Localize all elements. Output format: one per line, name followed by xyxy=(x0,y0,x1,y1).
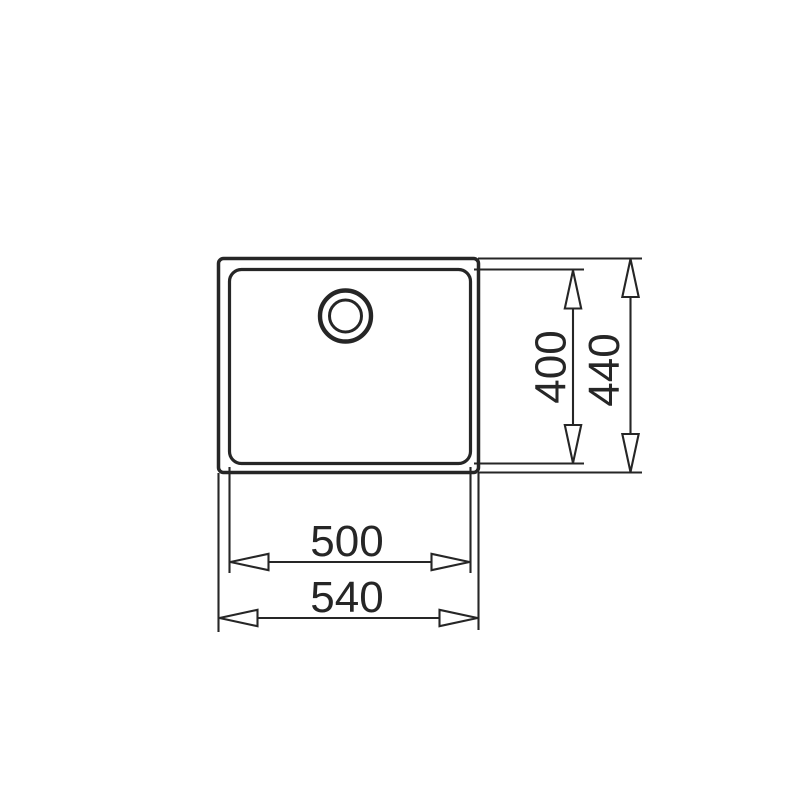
dimension-overall-depth: 440 xyxy=(580,259,639,472)
dimension-label-bowl-depth: 400 xyxy=(527,330,576,403)
technical-drawing-svg: 400 440 500 540 xyxy=(0,0,800,800)
arrowhead-left-icon xyxy=(231,554,269,570)
dimension-bowl-depth: 400 xyxy=(527,271,582,464)
arrowhead-down-icon xyxy=(565,425,581,463)
arrowhead-down-icon xyxy=(622,434,638,472)
arrowhead-up-icon xyxy=(565,271,581,309)
arrowhead-up-icon xyxy=(622,259,638,297)
dimension-label-bowl-width: 500 xyxy=(310,517,383,566)
dimension-bowl-width: 500 xyxy=(231,517,470,570)
arrowhead-right-icon xyxy=(440,610,478,626)
arrowhead-right-icon xyxy=(432,554,470,570)
dimension-label-overall-width: 540 xyxy=(310,573,383,622)
dimension-overall-width: 540 xyxy=(220,573,478,626)
dimension-label-overall-depth: 440 xyxy=(580,333,629,406)
arrowhead-left-icon xyxy=(220,610,258,626)
sink-dimension-drawing: 400 440 500 540 xyxy=(0,0,800,800)
